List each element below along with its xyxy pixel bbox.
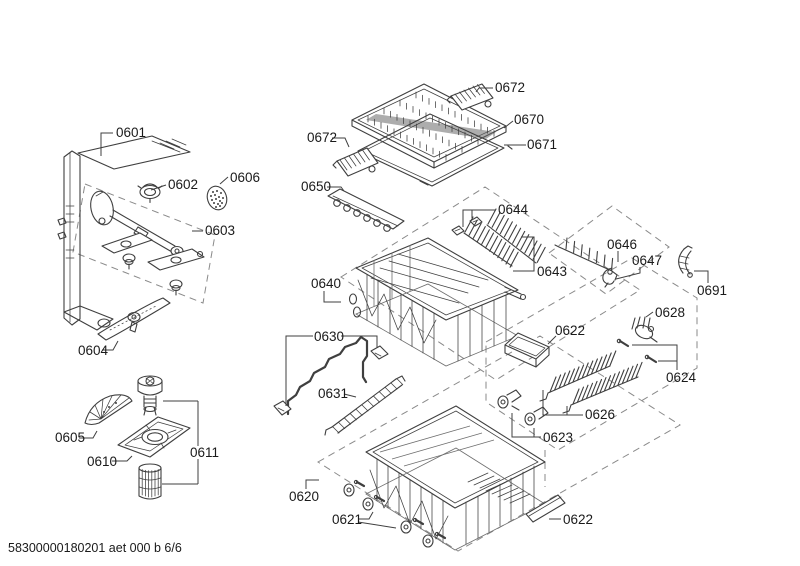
part-0631-rack-rail [325,376,405,435]
part-label-0624: 0624 [666,370,697,385]
part-0610-filter-plate [118,417,190,457]
part-label-0691: 0691 [697,283,727,298]
leader-0691 [694,271,708,283]
group-boxes [73,184,697,551]
part-0624-screws [617,339,656,362]
part-label-0602: 0602 [168,177,198,192]
part-label-0672-top: 0672 [495,80,525,95]
part-label-0605: 0605 [55,430,85,445]
leader-0647 [616,267,640,279]
part-0620-lower-basket [366,406,545,550]
part-label-0610: 0610 [87,454,117,469]
part-label-0620: 0620 [289,489,319,504]
part-label-0601: 0601 [116,125,146,140]
part-0647-clip [603,268,614,287]
part-label-0623: 0623 [543,430,573,445]
document-code: 58300000180201 aet 000 b 6/6 [8,541,182,555]
part-0611-filter-head [138,376,162,415]
part-label-0644: 0644 [498,202,529,217]
exploded-diagram: 0601 0602 0606 0603 0604 0605 0610 0611 … [0,0,800,566]
leader-0620 [306,480,319,489]
leader-0621 [358,512,396,528]
part-0626-folding-tine-rows [540,351,642,413]
part-label-0672-left: 0672 [307,130,337,145]
diagram-page: 0601 0602 0606 0603 0604 0605 0610 0611 … [0,0,800,566]
part-0601-inlet-pipe [58,136,190,330]
part-label-0646: 0646 [607,237,637,252]
part-label-0670: 0670 [514,112,544,127]
part-0672-rail-left [333,148,378,176]
part-0623-rollers [498,390,548,425]
part-label-0611: 0611 [190,445,219,460]
part-label-0647: 0647 [632,253,662,268]
part-0644-clips [452,217,482,235]
part-0605-micro-filter [85,395,132,425]
part-0622-strip-lower [526,495,565,522]
part-label-0640: 0640 [311,276,341,291]
part-label-0622-lower: 0622 [563,512,593,527]
part-label-0606: 0606 [230,170,260,185]
part-0628-latch-clip [632,317,657,342]
part-label-0621: 0621 [332,512,362,527]
leader-lines [79,88,708,528]
part-label-0630: 0630 [314,329,344,344]
part-label-0628: 0628 [655,305,685,320]
part-0604-spray-arm [98,298,170,340]
part-label-0650: 0650 [301,179,331,194]
part-0611-mesh-cylinder [139,464,161,499]
part-label-0622-upper: 0622 [555,323,585,338]
part-label-0603: 0603 [205,223,235,238]
part-label-0671: 0671 [527,137,557,152]
part-label-0604: 0604 [78,343,109,358]
part-0606-perforated-disc [204,184,229,213]
part-0603-spray-assembly [88,189,204,295]
leader-0640 [324,291,341,302]
part-0602-cap-nut [138,184,162,203]
part-label-0631: 0631 [318,386,348,401]
leader-0624 [632,345,677,370]
group-box-0620 [318,336,680,551]
leader-0606 [220,177,228,184]
part-label-0626: 0626 [585,407,615,422]
part-0691-bracket [679,246,693,277]
leader-0628 [646,312,653,317]
leader-0670 [504,121,513,128]
part-0650-roller-rail [328,189,404,231]
part-label-0643: 0643 [537,264,567,279]
leader-0601 [101,133,113,156]
